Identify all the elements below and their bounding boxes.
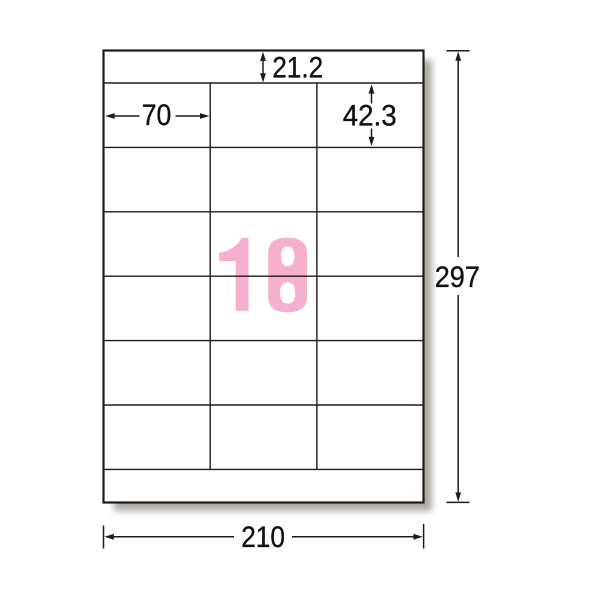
svg-text:70: 70 <box>142 99 172 132</box>
svg-text:297: 297 <box>435 261 480 294</box>
svg-text:42.3: 42.3 <box>343 100 397 133</box>
svg-text:21.2: 21.2 <box>272 52 323 85</box>
svg-text:210: 210 <box>241 521 285 554</box>
